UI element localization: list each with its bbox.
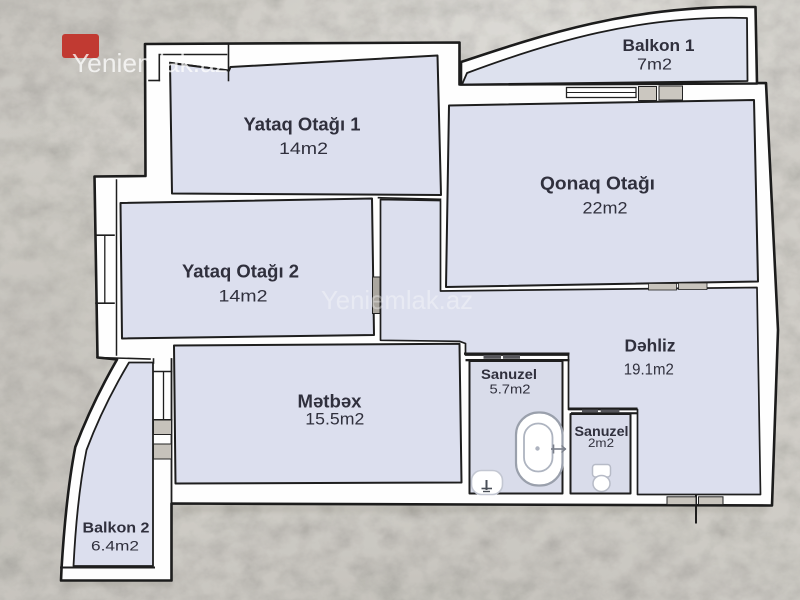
svg-text:19.1m2: 19.1m2 xyxy=(624,362,674,379)
svg-text:Yataq Otağı 1: Yataq Otağı 1 xyxy=(244,115,361,135)
svg-text:Mətbəx: Mətbəx xyxy=(298,392,362,412)
svg-text:Balkon 1: Balkon 1 xyxy=(623,37,695,55)
svg-text:Yataq Otağı 2: Yataq Otağı 2 xyxy=(182,262,299,282)
svg-text:5.7m2: 5.7m2 xyxy=(490,383,531,397)
svg-text:6.4m2: 6.4m2 xyxy=(91,538,139,554)
svg-text:14m2: 14m2 xyxy=(279,140,328,158)
svg-text:14m2: 14m2 xyxy=(219,288,268,306)
svg-text:Balkon 2: Balkon 2 xyxy=(83,520,150,537)
svg-text:Sanuzel: Sanuzel xyxy=(481,367,537,382)
svg-text:7m2: 7m2 xyxy=(637,57,672,74)
svg-text:15.5m2: 15.5m2 xyxy=(305,411,364,429)
svg-text:Qonaq Otağı: Qonaq Otağı xyxy=(540,174,655,194)
svg-text:2m2: 2m2 xyxy=(588,436,614,450)
svg-text:22m2: 22m2 xyxy=(583,200,628,218)
svg-text:Yeniemlak.az: Yeniemlak.az xyxy=(321,285,473,315)
svg-text:Yeniemlak.az: Yeniemlak.az xyxy=(72,48,228,78)
svg-text:Dəhliz: Dəhliz xyxy=(625,336,676,356)
